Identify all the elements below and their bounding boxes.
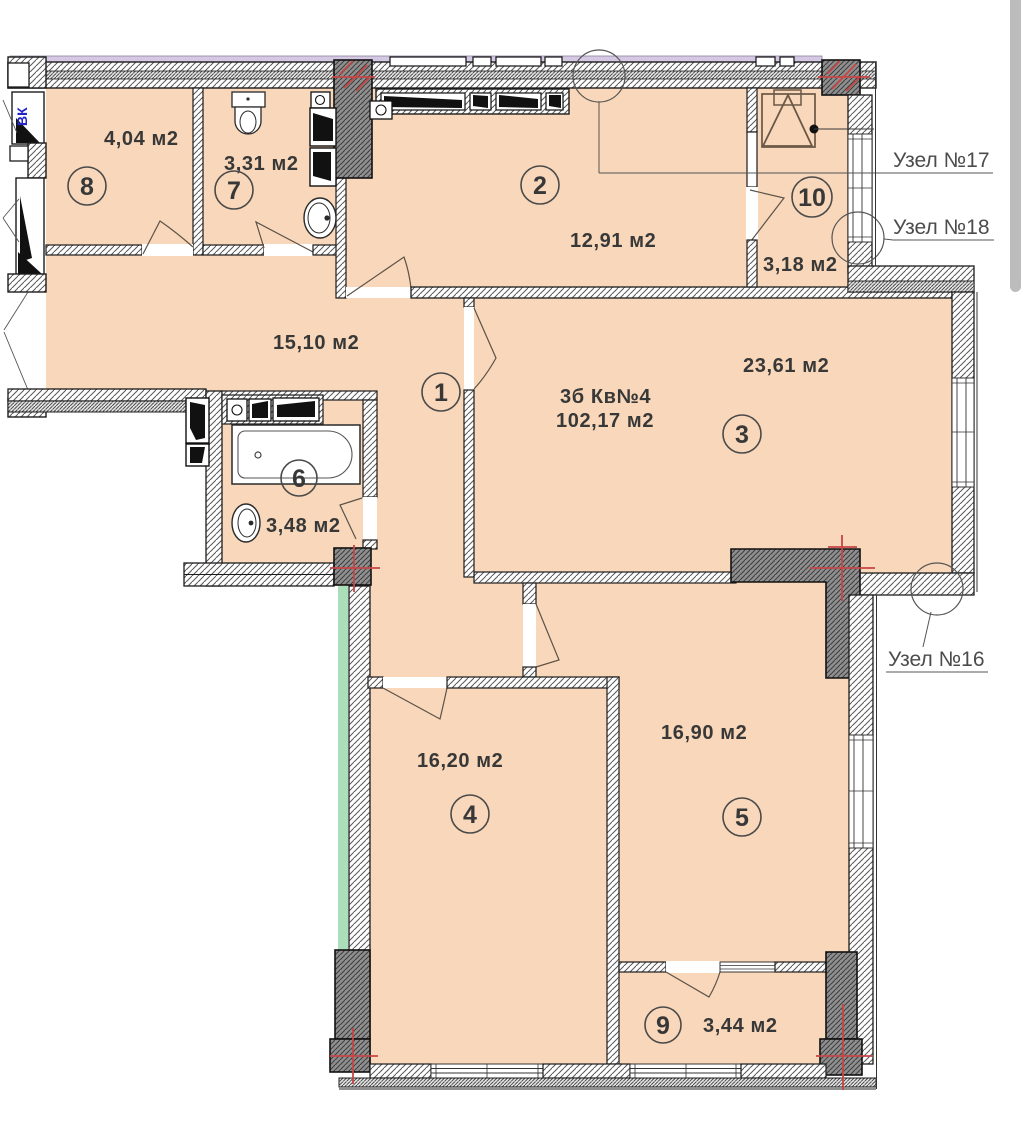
svg-text:7: 7: [227, 177, 241, 205]
svg-text:10: 10: [798, 184, 826, 212]
svg-text:3,48 м2: 3,48 м2: [266, 515, 341, 537]
svg-text:4,04 м2: 4,04 м2: [104, 128, 179, 150]
svg-text:3б Кв№4: 3б Кв№4: [560, 386, 651, 408]
svg-text:ВК: ВК: [14, 107, 30, 126]
svg-text:3,44 м2: 3,44 м2: [703, 1015, 778, 1037]
svg-text:1: 1: [434, 379, 448, 407]
svg-text:15,10 м2: 15,10 м2: [273, 332, 359, 354]
svg-text:5: 5: [735, 804, 749, 832]
svg-text:102,17 м2: 102,17 м2: [556, 410, 654, 432]
svg-text:Узел №18: Узел №18: [893, 216, 990, 239]
svg-text:4: 4: [463, 801, 477, 829]
svg-text:6: 6: [292, 465, 306, 493]
svg-text:2: 2: [533, 172, 547, 200]
svg-text:9: 9: [656, 1012, 670, 1040]
svg-text:Узел №16: Узел №16: [888, 648, 985, 671]
svg-text:16,20 м2: 16,20 м2: [417, 750, 503, 772]
svg-text:23,61 м2: 23,61 м2: [743, 355, 829, 377]
svg-text:16,90 м2: 16,90 м2: [661, 722, 747, 744]
svg-text:3: 3: [735, 421, 749, 449]
svg-text:8: 8: [80, 173, 94, 201]
svg-text:3,18 м2: 3,18 м2: [763, 254, 838, 276]
svg-text:12,91 м2: 12,91 м2: [570, 230, 656, 252]
svg-text:Узел №17: Узел №17: [893, 149, 990, 172]
